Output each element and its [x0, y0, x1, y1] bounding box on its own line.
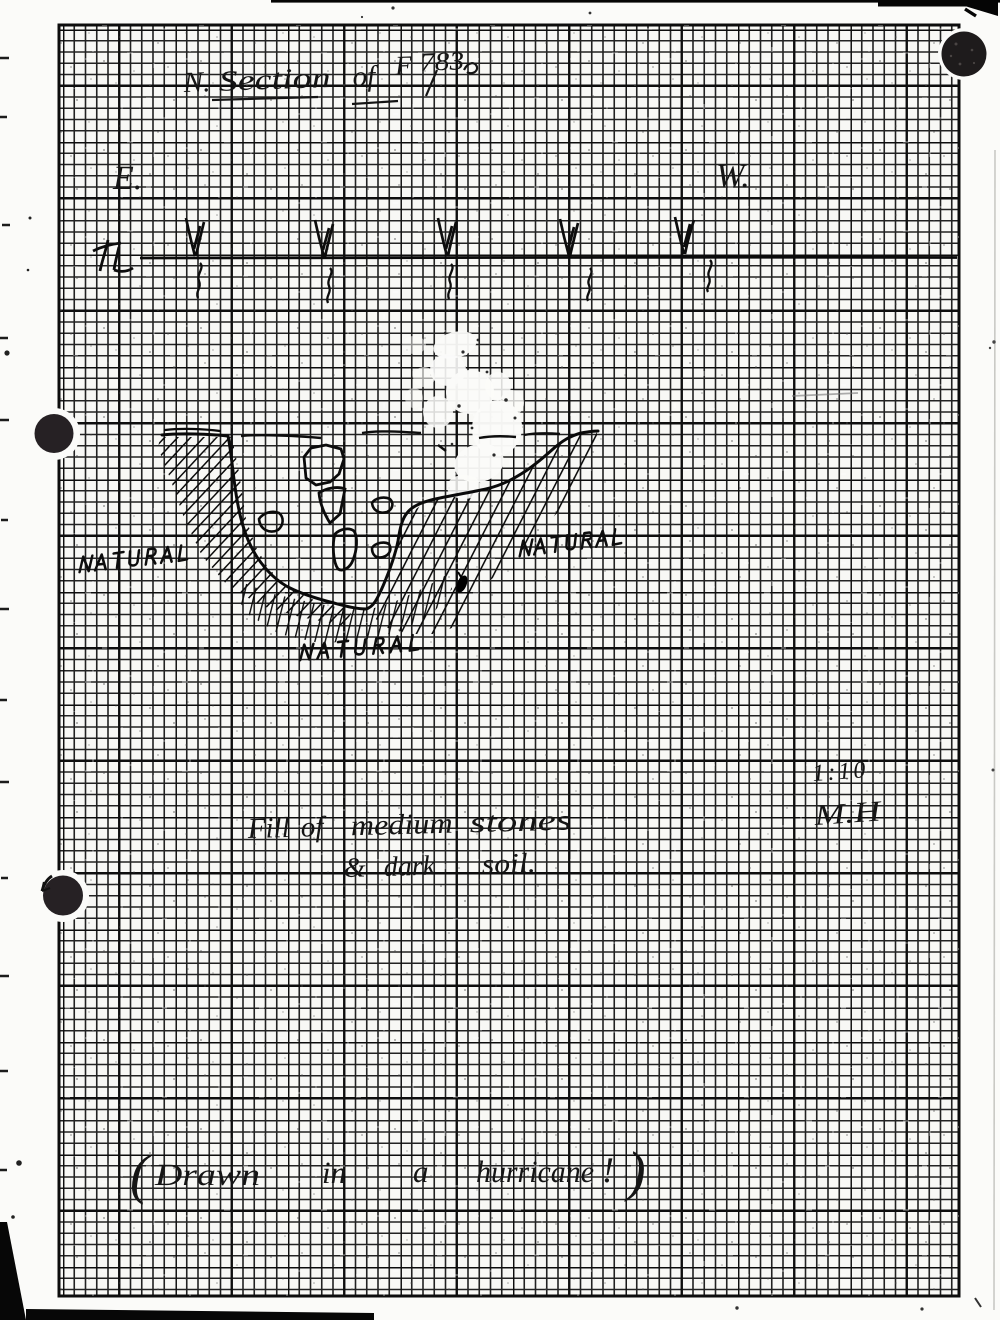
svg-text:a: a	[413, 1154, 429, 1189]
svg-text:dark: dark	[383, 851, 436, 883]
svg-text:&: &	[343, 852, 366, 884]
svg-text:Fill: Fill	[246, 812, 290, 845]
svg-text:1:10: 1:10	[812, 757, 870, 787]
svg-text:of: of	[300, 811, 327, 844]
svg-text:W.: W.	[716, 158, 750, 195]
svg-text:N.: N.	[182, 66, 211, 99]
svg-text:stones: stones	[469, 805, 572, 840]
svg-text:medium: medium	[350, 808, 453, 843]
svg-text:soil.: soil.	[481, 848, 536, 880]
svg-text:!: !	[602, 1150, 614, 1190]
svg-text:F: F	[394, 50, 413, 81]
svg-text:in: in	[322, 1155, 346, 1190]
svg-text:hurricane: hurricane	[476, 1154, 594, 1189]
svg-text:M.H: M.H	[812, 795, 884, 832]
svg-text:(: (	[130, 1144, 152, 1206]
svg-text:Section: Section	[218, 62, 331, 98]
svg-text:E.: E.	[112, 160, 142, 197]
svg-text:Drawn: Drawn	[154, 1157, 260, 1192]
svg-text:783: 783	[420, 46, 465, 77]
svg-text:): )	[624, 1141, 646, 1203]
svg-text:of: of	[352, 60, 380, 93]
